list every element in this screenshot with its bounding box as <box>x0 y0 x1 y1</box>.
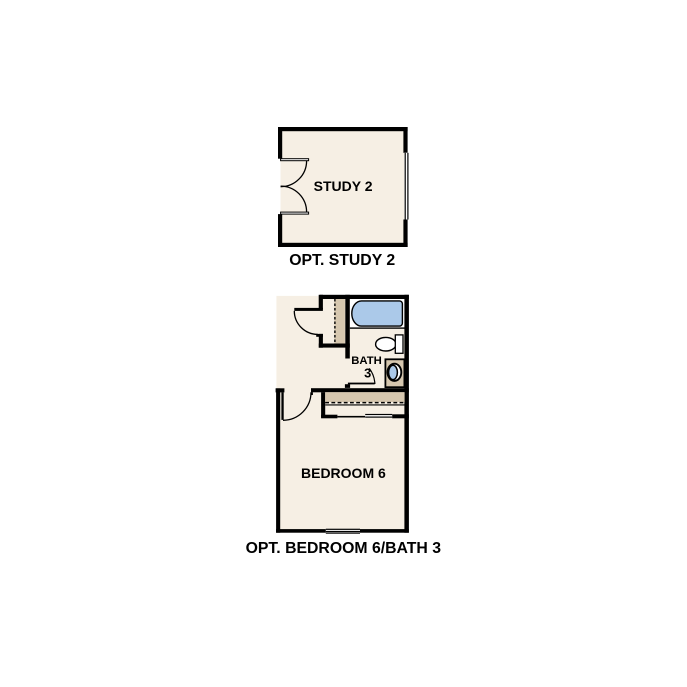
svg-text:BEDROOM 6: BEDROOM 6 <box>301 465 386 481</box>
svg-text:STUDY 2: STUDY 2 <box>314 178 373 194</box>
svg-text:3: 3 <box>364 366 371 381</box>
svg-text:OPT. STUDY 2: OPT. STUDY 2 <box>289 252 395 269</box>
svg-text:OPT. BEDROOM 6/BATH 3: OPT. BEDROOM 6/BATH 3 <box>246 540 442 557</box>
